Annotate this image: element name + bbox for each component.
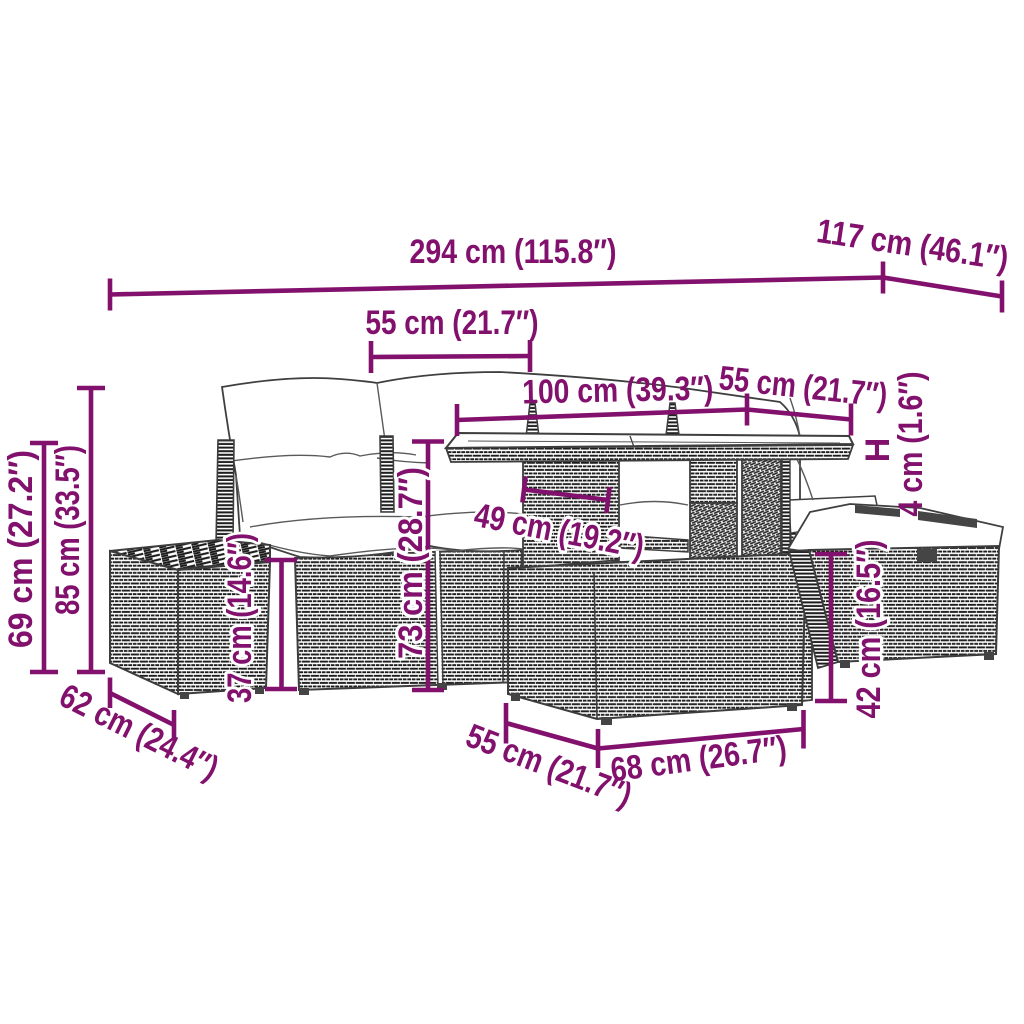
svg-text:37 cm (14.6″): 37 cm (14.6″)	[221, 533, 259, 703]
svg-text:294 cm (115.8″): 294 cm (115.8″)	[410, 233, 617, 271]
svg-text:42 cm (16.5″): 42 cm (16.5″)	[850, 540, 888, 719]
svg-text:4 cm (1.6″): 4 cm (1.6″)	[892, 372, 930, 517]
svg-text:69 cm (27.2″): 69 cm (27.2″)	[2, 450, 40, 648]
svg-text:73 cm (28.7″): 73 cm (28.7″)	[392, 467, 430, 659]
svg-text:100 cm (39.3″): 100 cm (39.3″)	[522, 370, 714, 412]
svg-text:85 cm (33.5″): 85 cm (33.5″)	[49, 445, 87, 615]
svg-text:55 cm (21.7″): 55 cm (21.7″)	[366, 304, 539, 342]
